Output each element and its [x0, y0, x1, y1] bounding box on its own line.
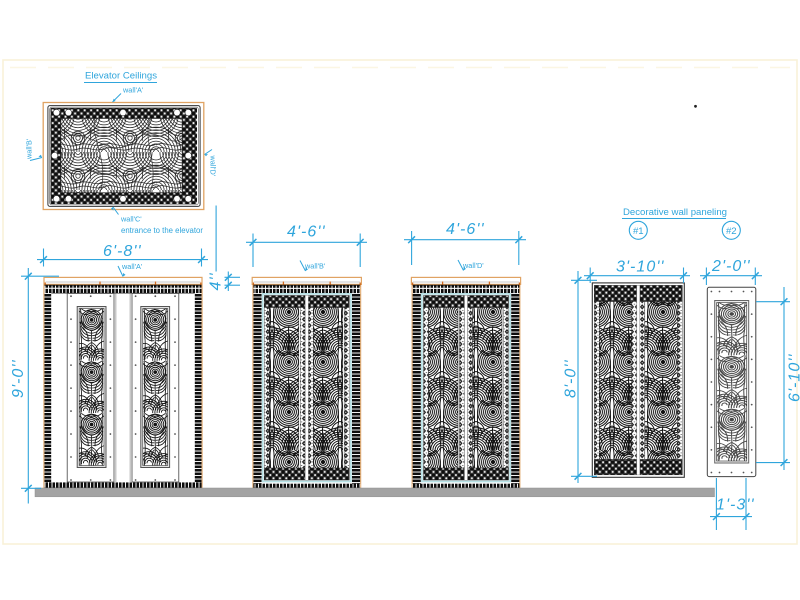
svg-text:6'-10'': 6'-10''	[787, 353, 800, 402]
svg-text:4'': 4''	[208, 272, 225, 290]
svg-text:8'-0'': 8'-0''	[563, 359, 580, 398]
svg-text:4'-6'': 4'-6''	[287, 224, 326, 241]
svg-text:6'-8'': 6'-8''	[103, 243, 142, 260]
svg-text:wall'A': wall'A'	[121, 262, 143, 271]
svg-text:wall'C': wall'C'	[120, 215, 142, 224]
svg-text:entrance to the elevator: entrance to the elevator	[121, 226, 203, 235]
svg-text:#2: #2	[726, 226, 737, 237]
svg-text:3'-10'': 3'-10''	[616, 259, 665, 276]
svg-text:wall'D': wall'D'	[209, 155, 218, 177]
svg-text:2'-0'': 2'-0''	[711, 258, 751, 275]
svg-text:Elevator Ceilings: Elevator Ceilings	[85, 71, 157, 82]
svg-text:wall'B': wall'B'	[25, 138, 34, 160]
svg-text:Decorative wall paneling: Decorative wall paneling	[623, 207, 727, 218]
svg-text:4'-6'': 4'-6''	[446, 221, 485, 238]
svg-text:#1: #1	[633, 226, 644, 237]
svg-text:1'-3'': 1'-3''	[716, 497, 755, 514]
svg-text:9'-0'': 9'-0''	[10, 359, 27, 398]
svg-text:wall'A': wall'A'	[122, 86, 144, 95]
